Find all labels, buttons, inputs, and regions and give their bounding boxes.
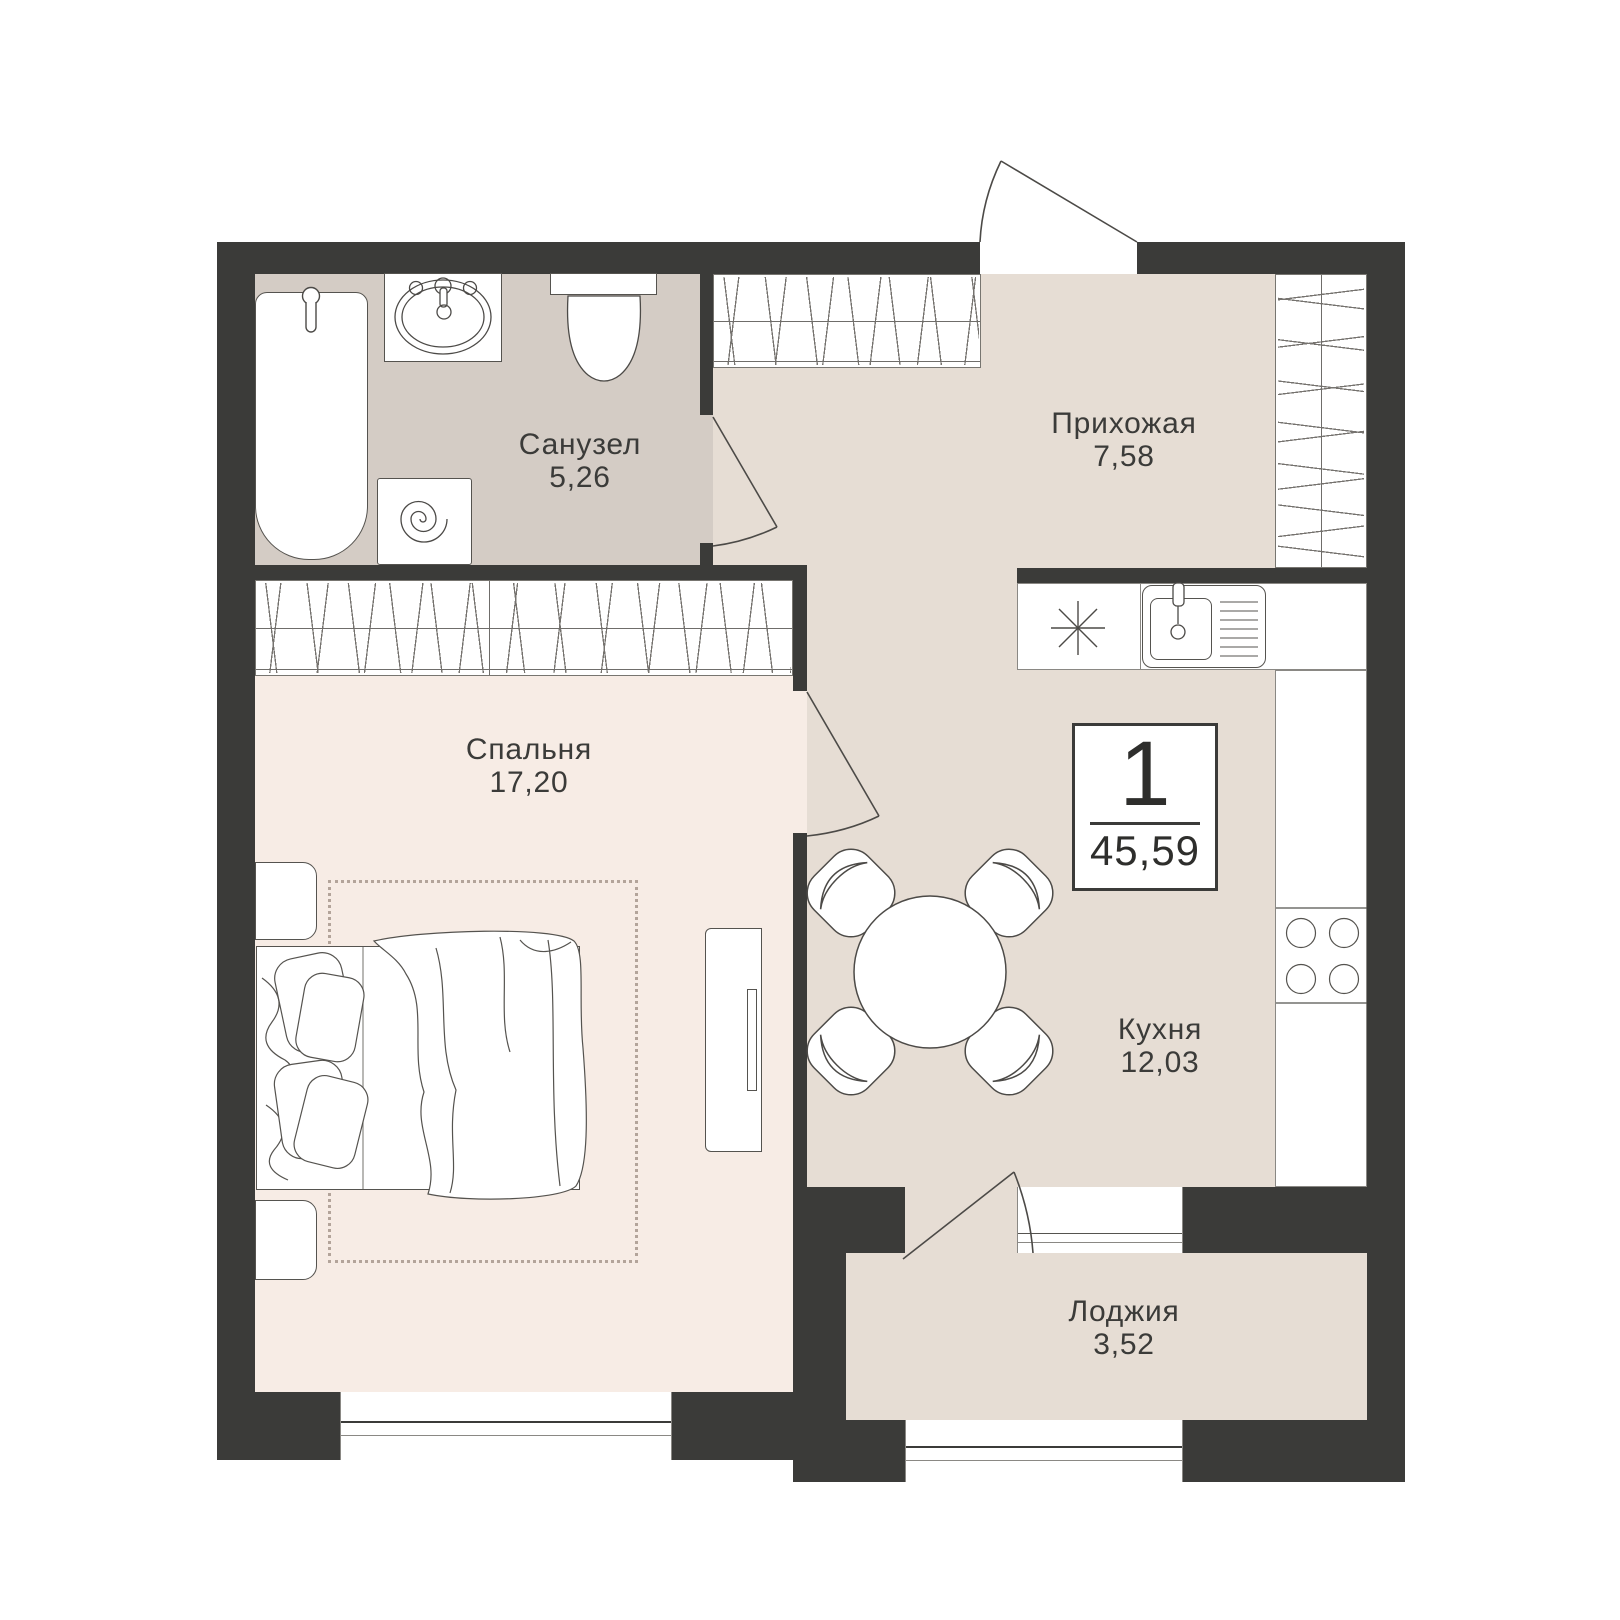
room-area: 7,58 [1051, 440, 1196, 473]
wall-top-right [1137, 242, 1405, 274]
wardrobe-rail [714, 321, 980, 322]
room-name: Лоджия [1068, 1295, 1179, 1328]
toilet-tank [550, 273, 657, 295]
room-area: 3,52 [1068, 1328, 1179, 1361]
label-loggia: Лоджия 3,52 [1068, 1295, 1179, 1361]
doorway-balcony-floor [905, 1187, 1017, 1253]
label-kitchen: Кухня 12,03 [1118, 1013, 1202, 1079]
room-area: 5,26 [519, 461, 641, 494]
wall-left [217, 242, 255, 1460]
label-hallway: Прихожая 7,58 [1051, 407, 1196, 473]
floor-plan: Санузел 5,26 Прихожая 7,58 Спальня 17,20… [0, 0, 1620, 1620]
tv [747, 989, 757, 1091]
tv-console [705, 928, 762, 1152]
window-loggia-frame-line [906, 1446, 1182, 1448]
wardrobe-divider [489, 581, 490, 675]
nightstand-top [255, 862, 317, 940]
nightstand-bottom [255, 1200, 317, 1280]
wardrobe-hallway-side [1275, 274, 1367, 568]
wall-bedroom-right-upper [793, 565, 807, 691]
window-loggia [905, 1420, 1183, 1482]
bathtub [255, 292, 368, 560]
wardrobe-front-line [714, 361, 980, 362]
washing-machine [377, 478, 472, 565]
window-bedroom [340, 1392, 672, 1460]
wall-right [1367, 242, 1405, 1253]
wardrobe-bedroom [255, 580, 793, 676]
room-name: Спальня [466, 733, 592, 766]
wall-kitchen-backsplash [1017, 568, 1367, 583]
room-name: Санузел [519, 428, 641, 461]
bathroom-sink-cabinet [384, 273, 502, 362]
window-bedroom-frame-line [341, 1421, 671, 1423]
kitchen-counter-right [1275, 670, 1367, 1187]
rooms-count: 1 [1119, 728, 1170, 820]
wall-bathroom-right-upper [700, 274, 713, 415]
window-bedroom-sill-line [341, 1435, 671, 1436]
wardrobe-hallway-top [713, 274, 981, 368]
wall-kitchen-loggia-right [1183, 1187, 1405, 1253]
total-area: 45,59 [1090, 828, 1200, 874]
window-kitchen-loggia [1017, 1187, 1183, 1253]
room-area: 12,03 [1118, 1046, 1202, 1079]
doorway-bedroom-floor [793, 691, 807, 833]
wardrobe-front-line [256, 669, 792, 670]
window-loggia-sill-line [906, 1460, 1182, 1461]
wall-under-bathroom [255, 565, 807, 580]
apartment-summary-box: 1 45,59 [1072, 723, 1218, 891]
doorway-bathroom-floor [700, 415, 713, 543]
bed-frame [256, 946, 580, 1190]
wall-loggia-right [1367, 1253, 1405, 1482]
kitchen-sink-bowl [1150, 598, 1212, 660]
summary-divider [1090, 822, 1200, 825]
room-name: Кухня [1118, 1013, 1202, 1046]
window-kitchen-sill-line [1018, 1242, 1182, 1243]
wall-top-left [217, 242, 980, 274]
wardrobe-rail [256, 628, 792, 629]
wall-loggia-left-block [793, 1187, 846, 1482]
room-name: Прихожая [1051, 407, 1196, 440]
wardrobe-rail [1321, 275, 1322, 567]
entry-door-swing [980, 161, 1137, 242]
floor-hallway-kitchen [713, 274, 1368, 1187]
label-bathroom: Санузел 5,26 [519, 428, 641, 494]
kitchen-counter-divider [1140, 583, 1141, 670]
window-kitchen-frame-line [1018, 1233, 1182, 1234]
room-area: 17,20 [466, 766, 592, 799]
wall-loggia-bottom-left [846, 1420, 905, 1482]
label-bedroom: Спальня 17,20 [466, 733, 592, 799]
